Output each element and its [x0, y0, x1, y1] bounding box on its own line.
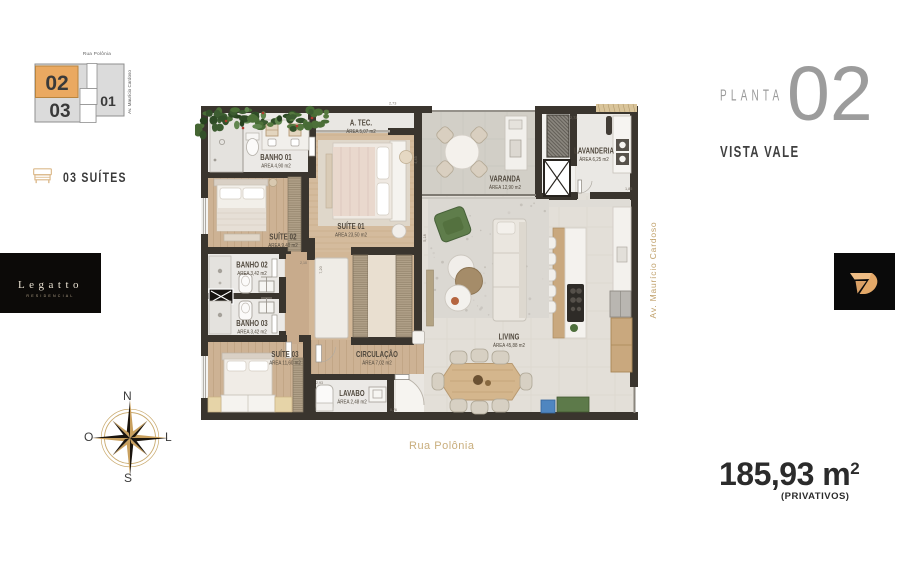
svg-text:2,73: 2,73	[570, 116, 577, 120]
svg-text:BANHO 02: BANHO 02	[236, 261, 268, 270]
svg-text:ÁREA 6,25 m2: ÁREA 6,25 m2	[579, 156, 609, 164]
svg-text:ÁREA 12,90 m2: ÁREA 12,90 m2	[489, 184, 521, 192]
svg-text:AREA 4,90 m2: AREA 4,90 m2	[261, 163, 291, 170]
svg-text:ÁREA 2,48 m2: ÁREA 2,48 m2	[337, 398, 367, 406]
svg-text:2,10: 2,10	[300, 261, 307, 265]
svg-text:LAVANDERIA: LAVANDERIA	[574, 147, 614, 156]
svg-text:SUÍTE 03: SUÍTE 03	[271, 349, 298, 359]
svg-text:03: 03	[49, 101, 70, 122]
svg-text:7,20: 7,20	[319, 266, 323, 273]
svg-text:5,18: 5,18	[423, 234, 427, 241]
svg-text:CIRCULAÇÃO: CIRCULAÇÃO	[356, 349, 398, 359]
svg-text:AREA 3,42 m2: AREA 3,42 m2	[237, 271, 267, 278]
svg-text:A. TEC.: A. TEC.	[350, 119, 372, 128]
svg-text:1,85: 1,85	[625, 187, 632, 191]
svg-text:SUÍTE 01: SUÍTE 01	[337, 221, 364, 231]
svg-text:AREA 9,40 m2: AREA 9,40 m2	[268, 243, 298, 250]
svg-text:AREA 11,60 m2: AREA 11,60 m2	[269, 360, 301, 367]
svg-text:BANHO 01: BANHO 01	[260, 153, 292, 162]
svg-text:VARANDA: VARANDA	[490, 175, 521, 184]
svg-text:01: 01	[100, 93, 116, 109]
svg-text:LIVING: LIVING	[499, 333, 520, 342]
svg-text:ÁREA 7,02 m2: ÁREA 7,02 m2	[362, 359, 392, 367]
svg-text:ÁREA 5,07 m2: ÁREA 5,07 m2	[346, 128, 376, 136]
svg-text:AREA 23,50 m2: AREA 23,50 m2	[335, 232, 367, 239]
svg-text:0,76: 0,76	[390, 408, 397, 412]
svg-text:ÁREA 45,88 m2: ÁREA 45,88 m2	[493, 342, 525, 350]
svg-text:2,93: 2,93	[316, 381, 323, 385]
svg-text:SUÍTE 02: SUÍTE 02	[269, 232, 296, 242]
svg-text:2,73: 2,73	[389, 102, 396, 106]
svg-text:02: 02	[45, 72, 68, 95]
svg-text:BANHO 03: BANHO 03	[236, 319, 268, 328]
svg-text:4,45: 4,45	[414, 156, 418, 163]
svg-text:AREA 3,42 m2: AREA 3,42 m2	[237, 329, 267, 336]
svg-text:LAVABO: LAVABO	[339, 389, 365, 398]
